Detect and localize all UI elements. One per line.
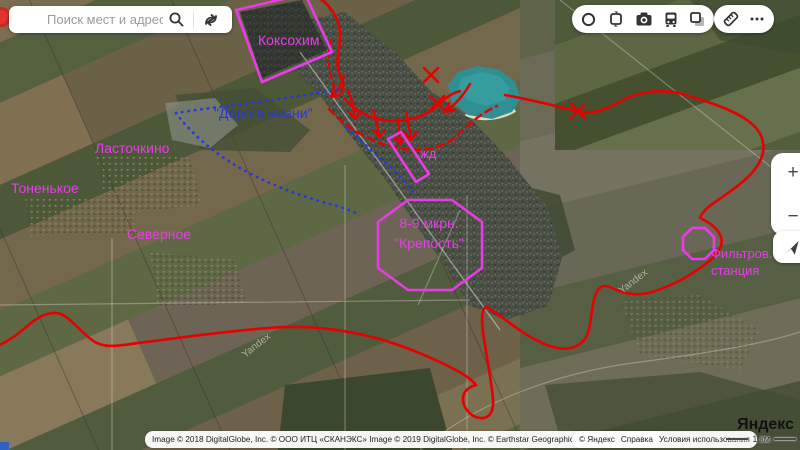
scale-label: 1 км (752, 434, 770, 444)
routes-button[interactable] (198, 7, 224, 33)
panorama-button[interactable] (580, 11, 597, 28)
camera-icon (635, 11, 653, 27)
scale-line-right (774, 438, 796, 440)
yandex-logo: Яндекс (737, 416, 794, 434)
bus-icon (663, 11, 679, 28)
bottom-left-blue-fragment (0, 442, 9, 450)
divider (193, 12, 194, 28)
map-layers-toolbar (572, 5, 714, 33)
help-link[interactable]: Справка (621, 435, 653, 444)
search-icon (168, 11, 185, 28)
zoom-controls: + − (771, 153, 800, 235)
layers-icon (689, 11, 706, 28)
scale-line-left (726, 438, 748, 440)
zoom-in-button[interactable]: + (771, 157, 800, 187)
search-button[interactable] (163, 7, 189, 33)
search-bar: Поиск мест и адресов (9, 6, 232, 33)
mirrors-button[interactable] (607, 10, 625, 28)
transport-button[interactable] (663, 11, 679, 28)
layers-button[interactable] (689, 11, 706, 28)
ruler-button[interactable] (722, 10, 740, 28)
tools-toolbar (714, 5, 774, 33)
locate-arrow-icon (782, 238, 800, 257)
map-canvas[interactable] (0, 0, 800, 450)
scale-bar: 1 км (726, 434, 796, 444)
panorama-icon (580, 11, 597, 28)
mirrors-icon (607, 10, 625, 28)
ruler-icon (722, 10, 740, 28)
yandex-maps-window: Yandex Yandex Коксохим "Дорога жизни" Ла… (0, 0, 800, 450)
more-button[interactable] (748, 10, 766, 28)
search-input[interactable]: Поиск мест и адресов (9, 12, 163, 27)
yandex-copyright-text: © Яндекс (579, 435, 615, 444)
imagery-copyright-text: Image © 2018 DigitalGlobe, Inc. © ООО ИТ… (152, 435, 578, 444)
zoom-out-button[interactable]: − (771, 201, 800, 231)
locate-button[interactable] (773, 231, 800, 263)
routes-icon (202, 11, 220, 29)
photos-button[interactable] (635, 11, 653, 27)
more-icon (748, 10, 766, 28)
